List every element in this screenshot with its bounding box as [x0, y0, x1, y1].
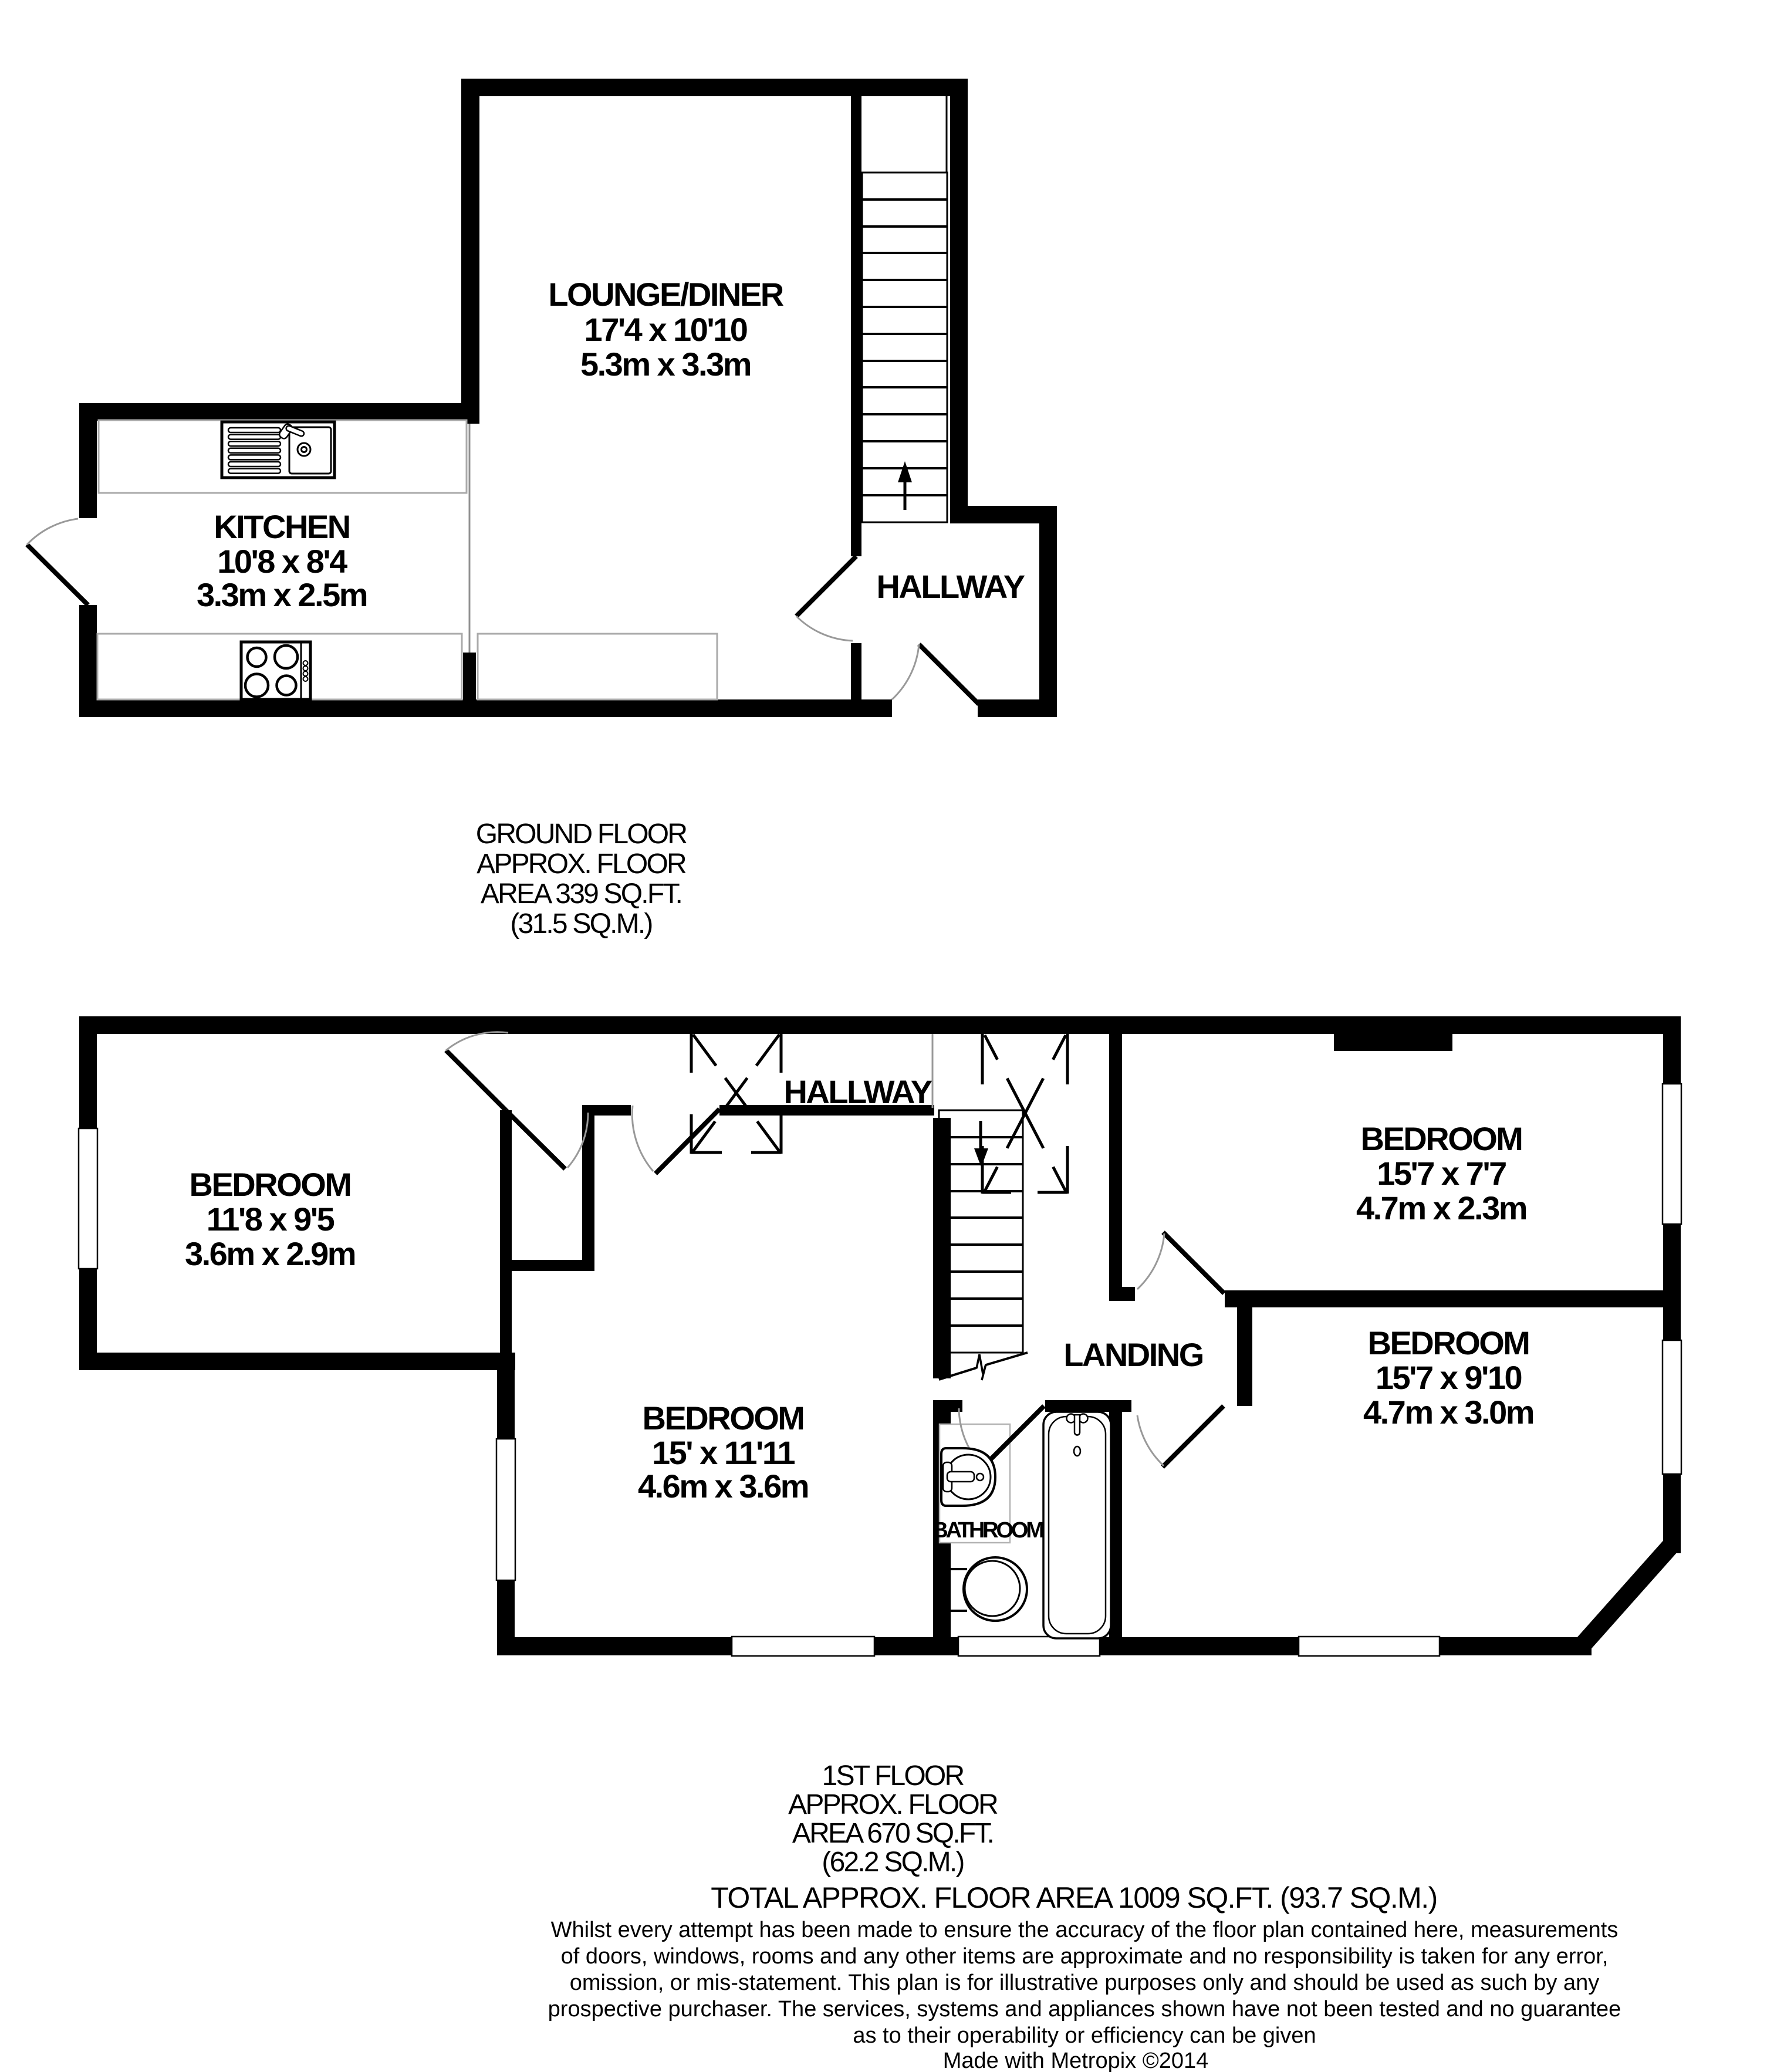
- svg-text:HALLWAY: HALLWAY: [876, 568, 1025, 605]
- svg-text:BEDROOM: BEDROOM: [190, 1166, 351, 1203]
- svg-text:AREA 670 SQ.FT.: AREA 670 SQ.FT.: [792, 1818, 993, 1849]
- svg-text:BATHROOM: BATHROOM: [932, 1518, 1043, 1543]
- svg-text:APPROX. FLOOR: APPROX. FLOOR: [477, 849, 686, 880]
- svg-text:KITCHEN: KITCHEN: [214, 508, 349, 545]
- svg-text:of doors, windows, rooms and a: of doors, windows, rooms and any other i…: [561, 1944, 1609, 1969]
- svg-text:15' x 11'11: 15' x 11'11: [652, 1434, 795, 1471]
- svg-text:1ST FLOOR: 1ST FLOOR: [822, 1760, 964, 1792]
- svg-text:10'8 x 8'4: 10'8 x 8'4: [217, 543, 347, 580]
- svg-text:LOUNGE/DINER: LOUNGE/DINER: [548, 276, 783, 313]
- svg-text:(62.2 SQ.M.): (62.2 SQ.M.): [822, 1847, 964, 1878]
- svg-text:GROUND FLOOR: GROUND FLOOR: [476, 819, 687, 850]
- svg-text:as to their operability or eff: as to their operability or efficiency ca…: [853, 2023, 1316, 2048]
- svg-text:11'8 x 9'5: 11'8 x 9'5: [207, 1201, 334, 1238]
- svg-text:Made with Metropix ©2014: Made with Metropix ©2014: [943, 2049, 1209, 2072]
- svg-text:AREA 339 SQ.FT.: AREA 339 SQ.FT.: [481, 878, 681, 910]
- svg-text:3.3m x 2.5m: 3.3m x 2.5m: [197, 576, 367, 613]
- svg-text:omission, or mis-statement. Th: omission, or mis-statement. This plan is…: [570, 1970, 1600, 1995]
- svg-text:BEDROOM: BEDROOM: [1361, 1120, 1522, 1157]
- svg-text:5.3m x 3.3m: 5.3m x 3.3m: [580, 346, 751, 383]
- svg-text:4.7m x 3.0m: 4.7m x 3.0m: [1363, 1394, 1533, 1431]
- svg-text:15'7 x 7'7: 15'7 x 7'7: [1377, 1155, 1506, 1192]
- svg-text:TOTAL APPROX. FLOOR AREA 1009: TOTAL APPROX. FLOOR AREA 1009 SQ.FT. (93…: [711, 1881, 1437, 1914]
- svg-text:17'4 x 10'10: 17'4 x 10'10: [584, 311, 747, 348]
- svg-text:APPROX. FLOOR: APPROX. FLOOR: [788, 1789, 998, 1820]
- svg-text:BEDROOM: BEDROOM: [643, 1400, 804, 1436]
- svg-text:15'7 x 9'10: 15'7 x 9'10: [1376, 1359, 1522, 1396]
- svg-text:HALLWAY: HALLWAY: [783, 1073, 932, 1110]
- svg-text:BEDROOM: BEDROOM: [1368, 1324, 1529, 1361]
- svg-text:Whilst every attempt has been: Whilst every attempt has been made to en…: [551, 1918, 1619, 1942]
- svg-text:(31.5 SQ.M.): (31.5 SQ.M.): [510, 908, 652, 939]
- svg-text:4.6m x 3.6m: 4.6m x 3.6m: [638, 1468, 808, 1505]
- svg-text:LANDING: LANDING: [1063, 1336, 1203, 1373]
- svg-text:3.6m x 2.9m: 3.6m x 2.9m: [185, 1235, 355, 1272]
- svg-text:prospective purchaser. The ser: prospective purchaser. The services, sys…: [548, 1997, 1621, 2022]
- svg-text:4.7m x 2.3m: 4.7m x 2.3m: [1356, 1189, 1526, 1226]
